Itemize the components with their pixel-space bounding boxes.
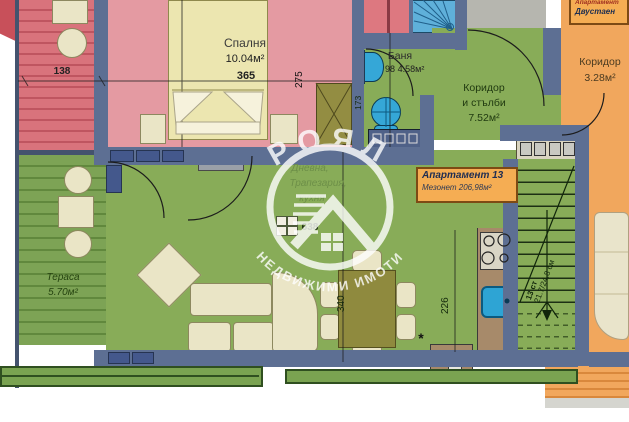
floor-plan: Спалня 10.04м² 365 275 Баня 98 4.58м² 17… — [0, 0, 629, 422]
neighbor-bed-lines — [595, 252, 628, 294]
apartment-label-box: Апартамент 13 Мезонет 206,98м² — [416, 167, 518, 203]
hall-name-2: и стълби — [462, 97, 505, 109]
heater-detail — [373, 134, 417, 143]
corridor-right-area: 3.28м² — [584, 72, 615, 84]
terrace-left-name: Тераса — [46, 272, 79, 283]
neighbor-subtitle: Двустаен — [575, 7, 623, 17]
bedroom-width-dim: 365 — [237, 70, 255, 82]
bathroom-area: 4.58м² — [398, 64, 425, 74]
bedroom-area: 10.04м² — [226, 53, 265, 65]
terrace-red-dim: 138 — [54, 66, 71, 77]
hall-name-1: Коридор — [463, 82, 504, 94]
apartment-title: Апартамент 13 — [422, 170, 512, 183]
corridor-right-name: Коридор — [579, 56, 620, 68]
bathroom-width-dim: 98 — [385, 64, 395, 74]
bathroom-name: Баня — [388, 50, 412, 62]
bed-pillows — [172, 90, 264, 134]
bedroom-height-dim: 275 — [294, 71, 305, 88]
bathroom-height-dim: 173 — [353, 96, 363, 110]
living-asterisk: * — [418, 330, 423, 346]
living-dim-main: 340 — [336, 295, 347, 312]
living-label-1: Дневна, — [291, 163, 328, 174]
neighbor-title: Апартамент — [575, 0, 623, 7]
bedroom-name: Спалня — [224, 36, 266, 50]
terrace-left-area: 5.70м² — [48, 287, 78, 298]
apartment-subtitle: Мезонет 206,98м² — [422, 183, 512, 193]
plan-linework — [0, 0, 629, 422]
neighbor-label-box: Апартамент Двустаен — [569, 0, 629, 25]
faucet-icon — [505, 299, 510, 304]
living-label-3: кухня — [299, 193, 325, 204]
window-grid-icon — [276, 216, 298, 236]
wardrobe-x — [316, 83, 352, 145]
stove-burners-icon — [482, 234, 510, 264]
hall-area: 7.52м² — [468, 112, 499, 124]
living-dim-note: 638 — [302, 222, 319, 233]
shower-fan-icon — [414, 0, 454, 31]
living-dim-kitchen: 226 — [440, 297, 451, 314]
living-label-2: Трапезария, — [289, 178, 346, 189]
toilet-crosshair — [371, 97, 401, 127]
